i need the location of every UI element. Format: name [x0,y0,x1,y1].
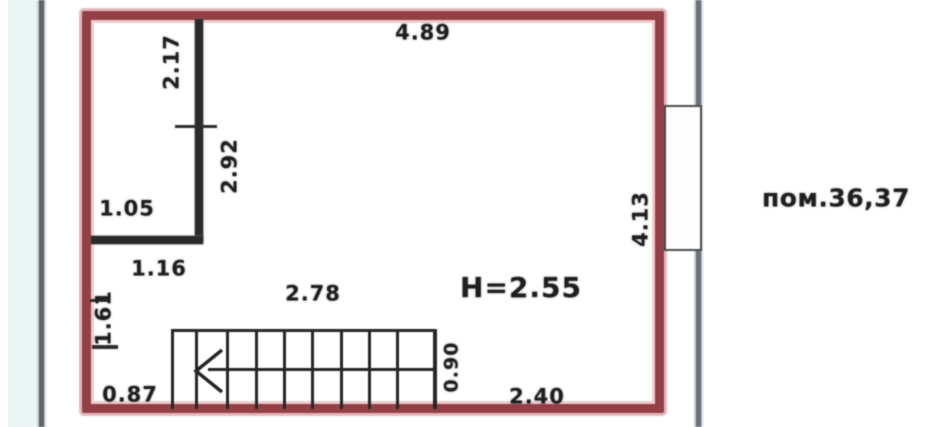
dim-partition-lower: 2.92 [220,138,241,194]
stairs-left-edge [171,329,174,409]
dim-left-lower: 1.61 [94,290,115,346]
dim-below-closet: 1.16 [131,259,187,280]
dim-stair-width: 0.90 [443,342,462,393]
window [664,105,702,251]
floor-plan-canvas: 4.89 2.17 2.92 1.05 1.16 1.61 0.87 2.78 … [0,0,942,427]
stairs-direction-line [208,368,436,371]
left-section-line [39,0,44,427]
dim-stair-length: 2.78 [285,284,341,305]
dim-bottom-left: 0.87 [102,385,158,406]
dim-closet-width: 1.05 [99,199,155,220]
dim-top-width: 4.89 [395,23,451,44]
dim-right-wall: 4.13 [631,191,652,247]
tick-partition-split [175,125,217,128]
left-tint-band [8,0,38,427]
room-number-label: пом.36,37 [762,186,910,211]
partition-wall-vertical [195,19,203,241]
dim-closet-height: 2.17 [162,34,183,90]
partition-wall-horizontal [91,236,203,244]
dim-bottom-right: 2.40 [509,387,565,408]
stairs-direction-arrow-icon [192,348,226,394]
ceiling-height-label: H=2.55 [460,274,582,302]
